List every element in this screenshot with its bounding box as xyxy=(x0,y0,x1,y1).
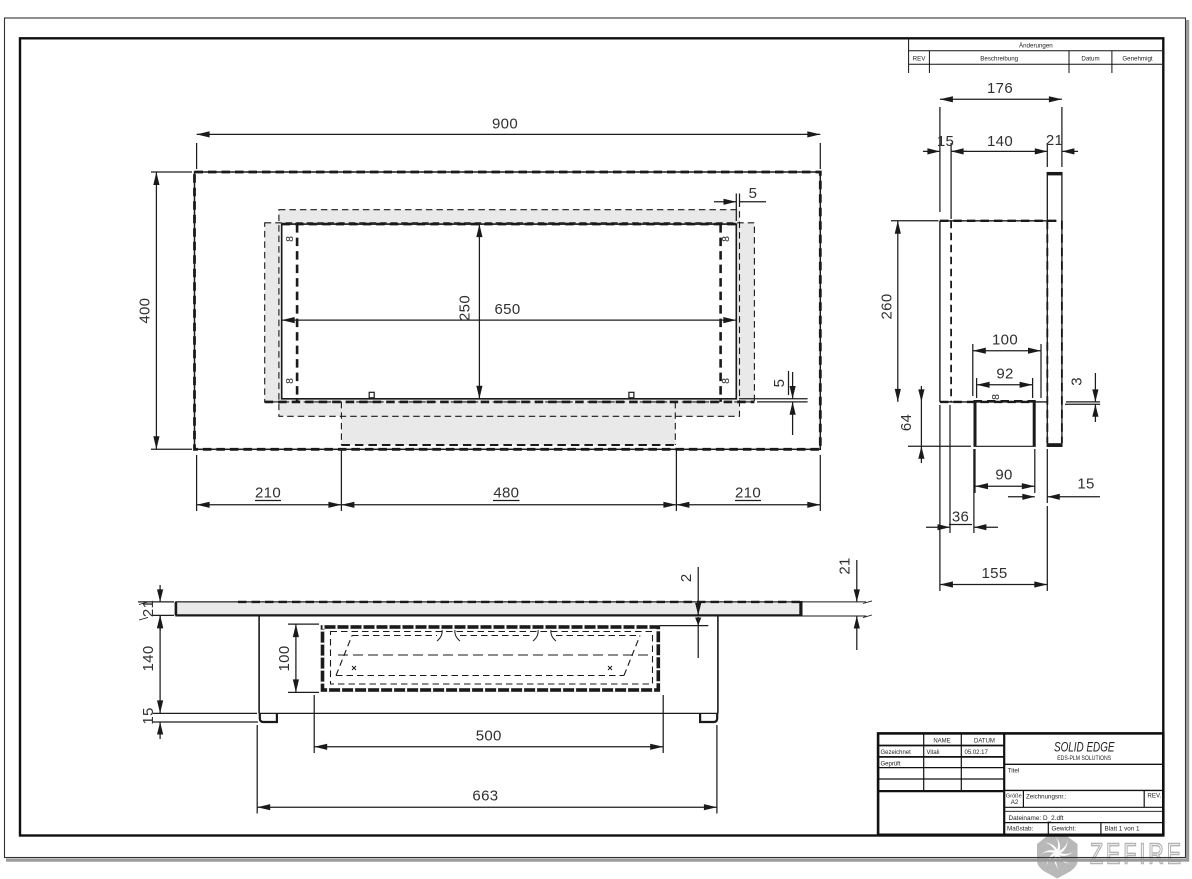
svg-text:Vitali: Vitali xyxy=(927,750,940,756)
svg-text:400: 400 xyxy=(137,298,154,324)
svg-text:21: 21 xyxy=(837,557,854,574)
svg-text:140: 140 xyxy=(140,646,157,672)
svg-text:Maßstab:: Maßstab: xyxy=(1007,825,1033,832)
svg-text:140: 140 xyxy=(987,133,1013,150)
svg-text:Geprüft: Geprüft xyxy=(881,761,901,767)
svg-text:EDS-PLM SOLUTIONS: EDS-PLM SOLUTIONS xyxy=(1057,755,1111,762)
svg-text:Gewicht:: Gewicht: xyxy=(1052,825,1077,832)
svg-text:90: 90 xyxy=(995,467,1012,484)
svg-text:8: 8 xyxy=(990,394,1002,400)
svg-text:A2: A2 xyxy=(1011,799,1019,806)
svg-text:64: 64 xyxy=(898,414,915,431)
svg-text:Änderungen: Änderungen xyxy=(1019,43,1053,50)
svg-text:05.02.17: 05.02.17 xyxy=(965,750,989,756)
svg-text:Gezeichnet: Gezeichnet xyxy=(881,750,912,756)
svg-text:100: 100 xyxy=(992,332,1018,349)
svg-text:8: 8 xyxy=(720,378,732,384)
svg-text:Zeichnungsnr.:: Zeichnungsnr.: xyxy=(1026,793,1067,800)
svg-text:REV.: REV. xyxy=(1147,793,1161,800)
svg-text:155: 155 xyxy=(982,565,1008,582)
svg-text:15: 15 xyxy=(140,707,157,724)
svg-text:210: 210 xyxy=(735,485,761,502)
svg-text:210: 210 xyxy=(255,485,281,502)
svg-text:260: 260 xyxy=(879,294,896,320)
svg-text:480: 480 xyxy=(493,485,519,502)
svg-text:176: 176 xyxy=(987,80,1013,97)
svg-text:100: 100 xyxy=(276,646,293,672)
svg-text:DATUM: DATUM xyxy=(974,739,995,745)
svg-text:Dateiname: D_2.dft: Dateiname: D_2.dft xyxy=(1009,815,1064,822)
svg-text:Titel: Titel xyxy=(1008,768,1020,775)
svg-text:Datum: Datum xyxy=(1081,56,1099,63)
svg-text:Blatt 1 von 1: Blatt 1 von 1 xyxy=(1105,825,1141,832)
svg-text:REV: REV xyxy=(913,56,927,63)
svg-text:650: 650 xyxy=(495,301,521,318)
svg-text:SOLID EDGE: SOLID EDGE xyxy=(1054,740,1115,755)
svg-text:5: 5 xyxy=(749,185,758,202)
svg-text:21: 21 xyxy=(140,600,157,617)
svg-text:15: 15 xyxy=(1077,476,1094,493)
svg-text:3: 3 xyxy=(1069,377,1086,386)
svg-text:500: 500 xyxy=(476,728,502,745)
svg-text:900: 900 xyxy=(492,116,518,133)
svg-text:36: 36 xyxy=(952,509,969,526)
svg-text:8: 8 xyxy=(284,236,296,242)
svg-text:Genehmigt: Genehmigt xyxy=(1122,56,1153,63)
svg-text:21: 21 xyxy=(1046,132,1063,149)
svg-text:8: 8 xyxy=(720,236,732,242)
svg-text:15: 15 xyxy=(937,133,954,150)
svg-text:Beschreibung: Beschreibung xyxy=(980,56,1018,63)
svg-text:NAME: NAME xyxy=(933,739,950,745)
svg-text:250: 250 xyxy=(457,295,474,321)
svg-text:8: 8 xyxy=(284,378,296,384)
svg-text:92: 92 xyxy=(996,366,1013,383)
svg-text:2: 2 xyxy=(678,573,695,582)
svg-text:663: 663 xyxy=(472,788,498,805)
svg-text:5: 5 xyxy=(771,379,788,388)
svg-text:ZEFIRE: ZEFIRE xyxy=(1090,839,1184,871)
